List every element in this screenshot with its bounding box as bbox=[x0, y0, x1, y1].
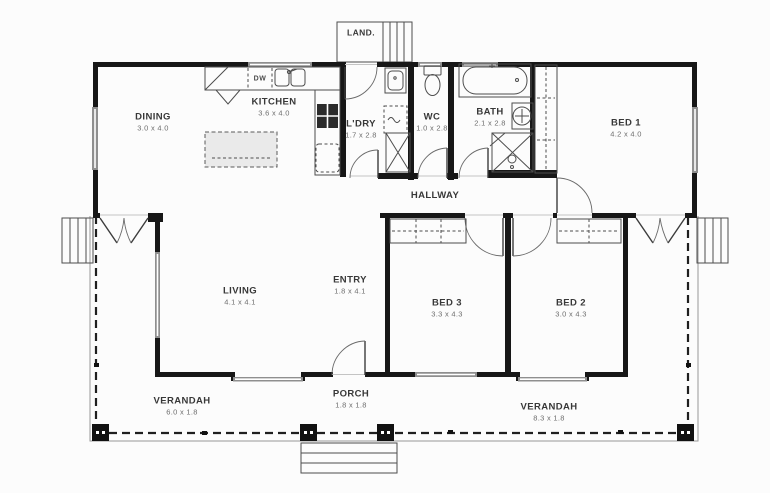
room-label-dining: DINING 3.0 x 4.0 bbox=[135, 111, 171, 132]
room-label-bath: BATH 2.1 x 2.8 bbox=[474, 106, 505, 127]
room-label-porch: PORCH 1.8 x 1.8 bbox=[333, 388, 369, 409]
room-labels: LAND. DINING 3.0 x 4.0 KITCHEN 3.6 x 4.0… bbox=[0, 0, 770, 493]
room-label-bed3: BED 3 3.3 x 4.3 bbox=[431, 297, 462, 318]
floor-plan: LAND. DINING 3.0 x 4.0 KITCHEN 3.6 x 4.0… bbox=[0, 0, 770, 493]
room-label-entry: ENTRY 1.8 x 4.1 bbox=[333, 274, 367, 295]
dishwasher-label: DW bbox=[254, 76, 267, 83]
room-label-land: LAND. bbox=[347, 28, 375, 39]
room-label-bed2: BED 2 3.0 x 4.3 bbox=[555, 297, 586, 318]
room-label-verandah-left: VERANDAH 6.0 x 1.8 bbox=[153, 395, 210, 416]
room-label-wc: WC 1.0 x 2.8 bbox=[416, 111, 447, 132]
room-label-hallway: HALLWAY bbox=[411, 190, 459, 202]
room-label-living: LIVING 4.1 x 4.1 bbox=[223, 285, 257, 306]
room-label-kitchen: KITCHEN 3.6 x 4.0 bbox=[251, 96, 296, 117]
room-label-bed1: BED 1 4.2 x 4.0 bbox=[610, 117, 641, 138]
room-label-verandah-right: VERANDAH 8.3 x 1.8 bbox=[520, 401, 577, 422]
room-label-ldry: L'DRY 1.7 x 2.8 bbox=[345, 118, 376, 139]
